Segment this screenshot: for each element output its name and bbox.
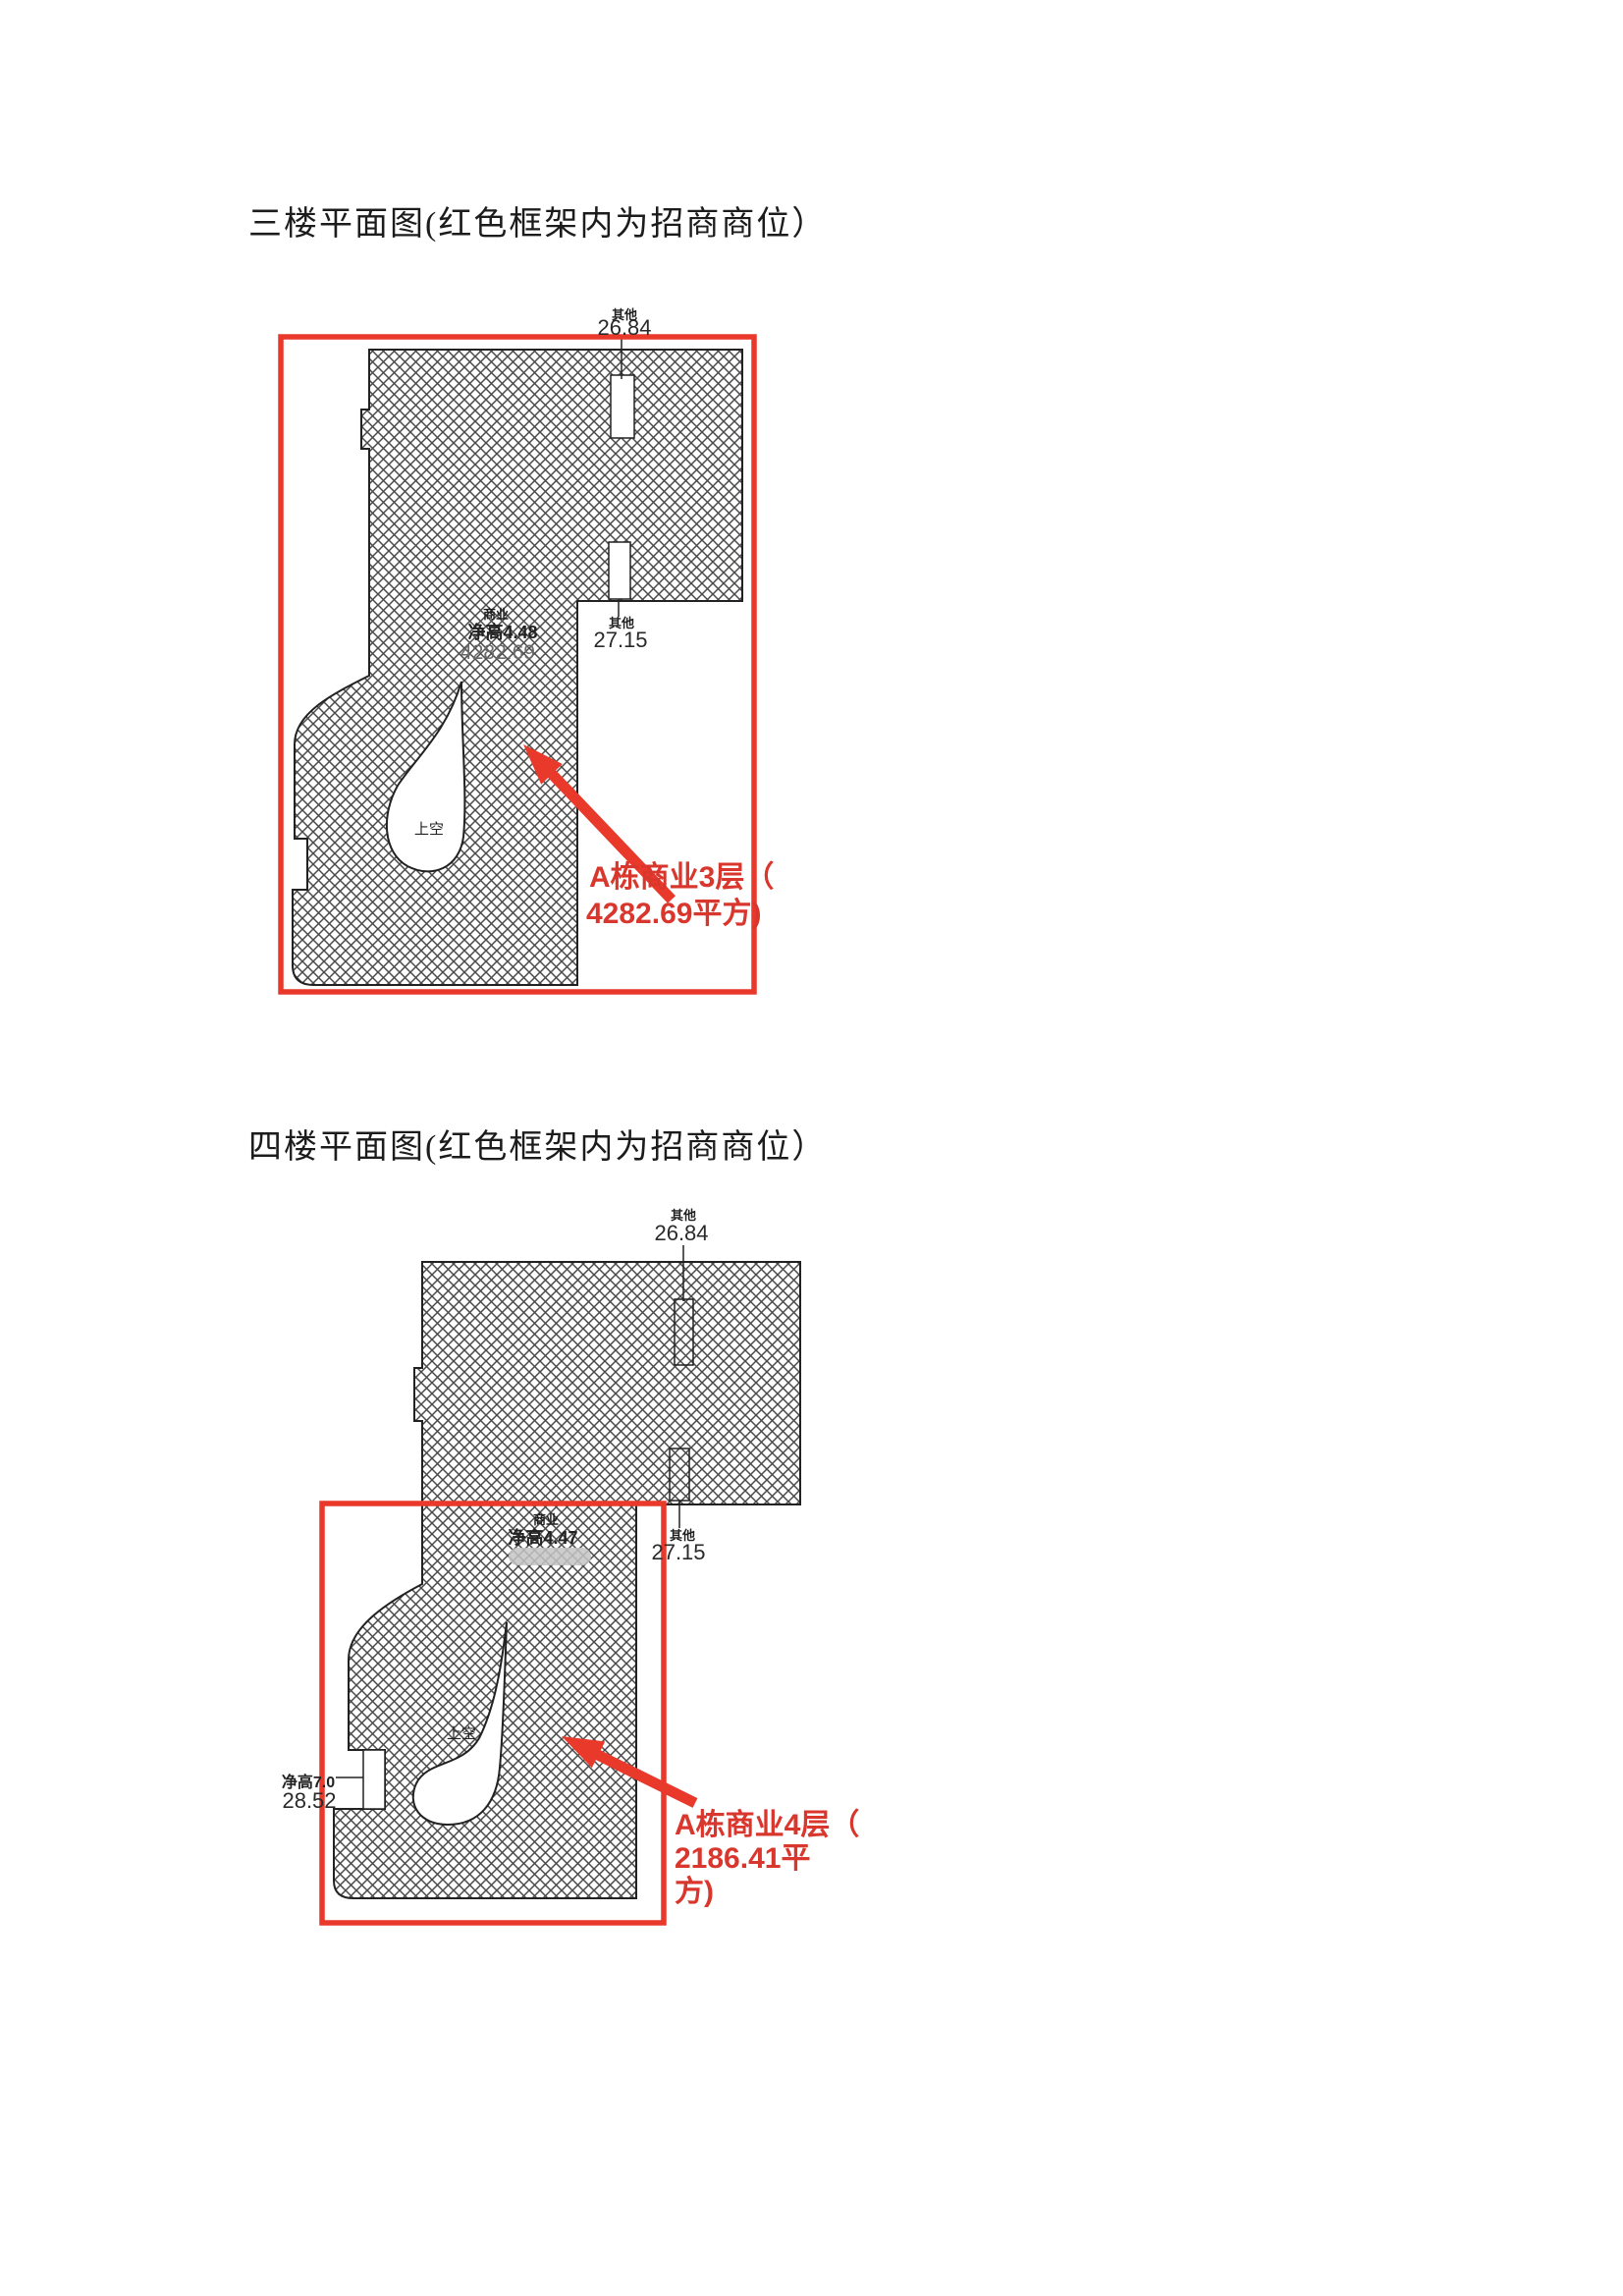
floor4-mid-value-label: 27.15 (651, 1540, 705, 1564)
floor4-callout-line3: 方) (675, 1875, 714, 1908)
floor3-plan-figure: 其他 26.84 商业 净高4.48 4282.69 其他 27.15 上空 A… (255, 285, 805, 1011)
floor4-unit-type-label: 商业 (533, 1512, 559, 1527)
document-page: 三楼平面图(红色框架内为招商商位） 其他 26.84 商业 净高4.48 428… (0, 0, 1623, 2296)
floor4-plan-figure: 其他 26.84 商业 净高4.47 其他 27.15 净高7.0 28.52 … (255, 1178, 884, 1974)
floor4-top-value-label: 26.84 (654, 1221, 708, 1245)
floor4-title: 四楼平面图(红色框架内为招商商位） (248, 1120, 936, 1168)
floor4-callout-line2: 2186.41平 (675, 1842, 810, 1875)
floor3-mid-value-label: 27.15 (593, 628, 647, 652)
floor3-void-label: 上空 (414, 821, 444, 838)
floor3-callout-line1: A栋商业3层（ (589, 860, 774, 894)
floor3-unit-height-label: 净高4.48 (467, 622, 537, 642)
floor3-unit-type-label: 商业 (483, 607, 509, 622)
floor3-opening-symbol-mid (609, 542, 630, 599)
floor3-top-value-label: 26.84 (597, 315, 651, 340)
floor4-unit-height-label: 净高4.47 (508, 1527, 577, 1548)
floor4-footprint-hatched (334, 1262, 800, 1898)
floor4-left-value-label: 28.52 (282, 1788, 336, 1813)
floor4-void-label: 上空 (447, 1725, 476, 1742)
floor4-callout-line1: A栋商业4层（ (675, 1808, 859, 1841)
floor3-title: 三楼平面图(红色框架内为招商商位） (248, 196, 936, 245)
floor3-unit-area-label: 4282.69 (460, 641, 535, 664)
floor4-area-redaction-blur (509, 1548, 591, 1565)
floor4-opening-symbol-left (363, 1750, 385, 1809)
floor3-callout-line2: 4282.69平方) (586, 897, 761, 930)
floor3-opening-symbol-top (611, 375, 634, 438)
